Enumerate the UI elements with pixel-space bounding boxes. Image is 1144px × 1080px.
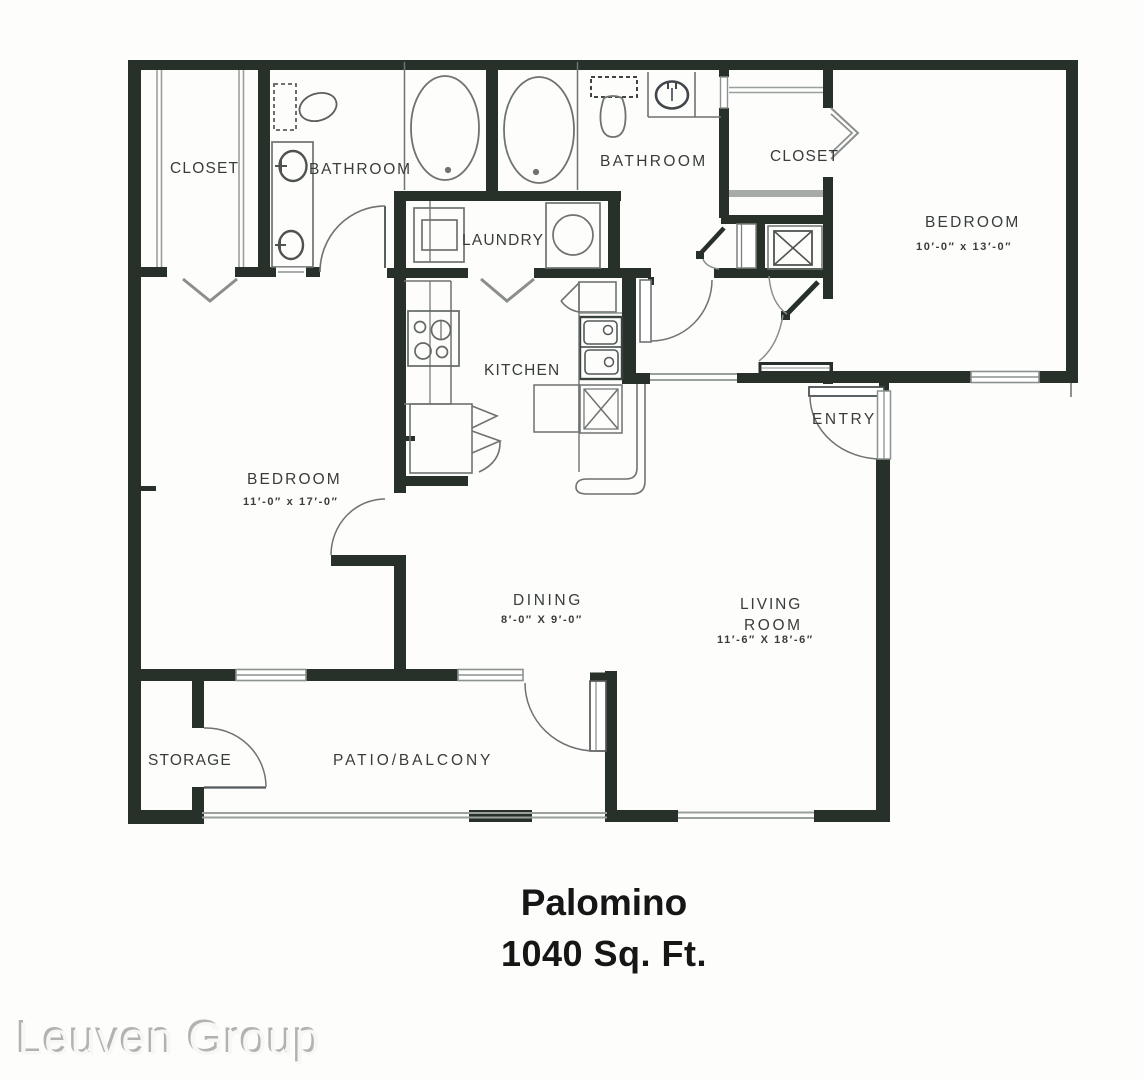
svg-text:BATHROOM: BATHROOM <box>600 153 708 170</box>
svg-text:BEDROOM: BEDROOM <box>247 471 342 488</box>
svg-text:STORAGE: STORAGE <box>148 752 232 769</box>
svg-text:11′-0″ x 17′-0″: 11′-0″ x 17′-0″ <box>243 496 338 508</box>
svg-text:LIVING: LIVING <box>740 596 802 613</box>
svg-text:CLOSET: CLOSET <box>770 148 839 165</box>
svg-text:PATIO/BALCONY: PATIO/BALCONY <box>333 752 493 769</box>
svg-text:Leuven Group: Leuven Group <box>18 1013 322 1065</box>
svg-text:LAUNDRY: LAUNDRY <box>462 232 544 249</box>
svg-text:DINING: DINING <box>513 592 583 609</box>
svg-text:10′-0″ x 13′-0″: 10′-0″ x 13′-0″ <box>916 241 1012 253</box>
svg-text:BATHROOM: BATHROOM <box>309 161 412 178</box>
svg-text:KITCHEN: KITCHEN <box>484 362 560 379</box>
svg-text:BEDROOM: BEDROOM <box>925 214 1021 231</box>
svg-text:CLOSET: CLOSET <box>170 160 239 177</box>
svg-text:Palomino: Palomino <box>521 882 688 923</box>
svg-text:ENTRY: ENTRY <box>812 411 877 428</box>
svg-text:1040 Sq. Ft.: 1040 Sq. Ft. <box>501 933 707 974</box>
svg-text:11′-6″ X 18′-6″: 11′-6″ X 18′-6″ <box>717 634 814 646</box>
svg-text:8′-0″ X 9′-0″: 8′-0″ X 9′-0″ <box>501 614 583 626</box>
svg-text:ROOM: ROOM <box>744 617 803 634</box>
